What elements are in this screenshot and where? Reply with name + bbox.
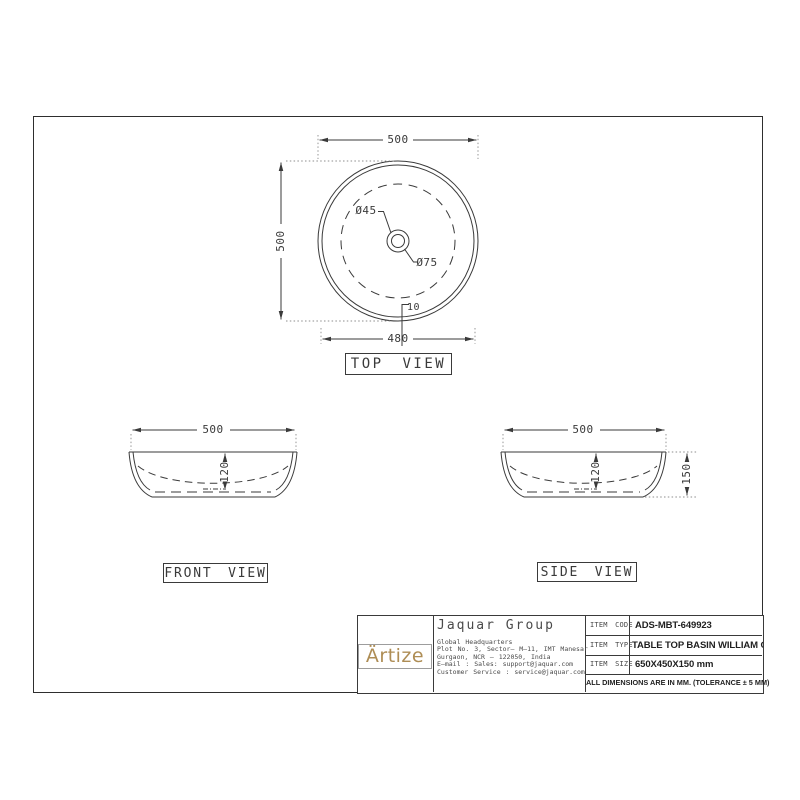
title-block-row-line-3 [585,674,762,675]
basin-inner-left-side [505,452,522,490]
drawing-sheet: 500 500 480 10 Ø45 Ø75 TOP VIEW 500 120 … [0,0,800,800]
basin-inner-right-front [276,452,293,490]
dim-rim: 10 [407,302,423,314]
dim-side-height: 150 [680,454,694,494]
front-view-drawing [129,430,297,497]
front-view-label: FRONT VIEW [164,566,266,581]
title-block-row-line-1 [585,635,762,636]
dim-drain-inner: Ø45 [353,205,379,217]
item-type-label: ITEM TYPE [590,641,633,649]
item-code-value: ADS-MBT-649923 [635,620,766,631]
basin-inner-left-front [133,452,150,490]
company-name: Jaquar Group [437,618,555,633]
item-size-label: ITEM SIZE [590,660,633,668]
brand-logo: Ärtize [366,647,424,666]
top-view-label-box: TOP VIEW [345,353,452,375]
drain-inner-leader [378,212,391,234]
basin-outer-right-side [643,452,666,497]
dim-front-depth: 120 [218,452,232,492]
item-code-label: ITEM CODE [590,621,633,629]
dim-drain-outer: Ø75 [414,257,440,269]
basin-inner-dashed-circle [341,184,455,298]
item-type-value: TABLE TOP BASIN WILLIAM GREY [632,640,763,651]
dim-side-depth: 120 [589,452,603,492]
tolerance-note: ALL DIMENSIONS ARE IN MM. (TOLERANCE ± 5… [586,678,762,687]
basin-rim-circle [322,165,474,317]
address-line: Customer Service : service@jaquar.com [437,669,588,676]
side-view-label-box: SIDE VIEW [537,562,637,582]
basin-outer-left-side [501,452,524,497]
dim-top-width: 500 [383,134,413,146]
basin-outer-circle [318,161,478,321]
dim-side-width: 500 [568,424,598,436]
brand-logo-box: Ärtize [358,644,432,669]
title-block-row-line-2 [585,655,762,656]
drain-inner-circle [392,235,405,248]
drain-outer-circle [387,230,409,252]
top-view-label: TOP VIEW [351,356,446,372]
side-view-label: SIDE VIEW [541,565,634,580]
title-block-divider-logo [433,615,434,692]
dim-front-width: 500 [198,424,228,436]
basin-hidden-arc-front [138,466,288,483]
dim-left-height: 500 [274,221,288,261]
basin-outer-right-front [275,452,297,497]
item-size-value: 650X450X150 mm [635,659,766,670]
basin-hidden-arc-side [510,466,657,483]
dim-bottom-width: 480 [383,333,413,345]
company-address: Global Headquarters Plot No. 3, Sector– … [437,639,588,676]
top-view-drawing [281,135,478,346]
basin-outer-left-front [129,452,152,497]
front-view-label-box: FRONT VIEW [163,563,268,583]
basin-inner-right-side [645,452,662,490]
